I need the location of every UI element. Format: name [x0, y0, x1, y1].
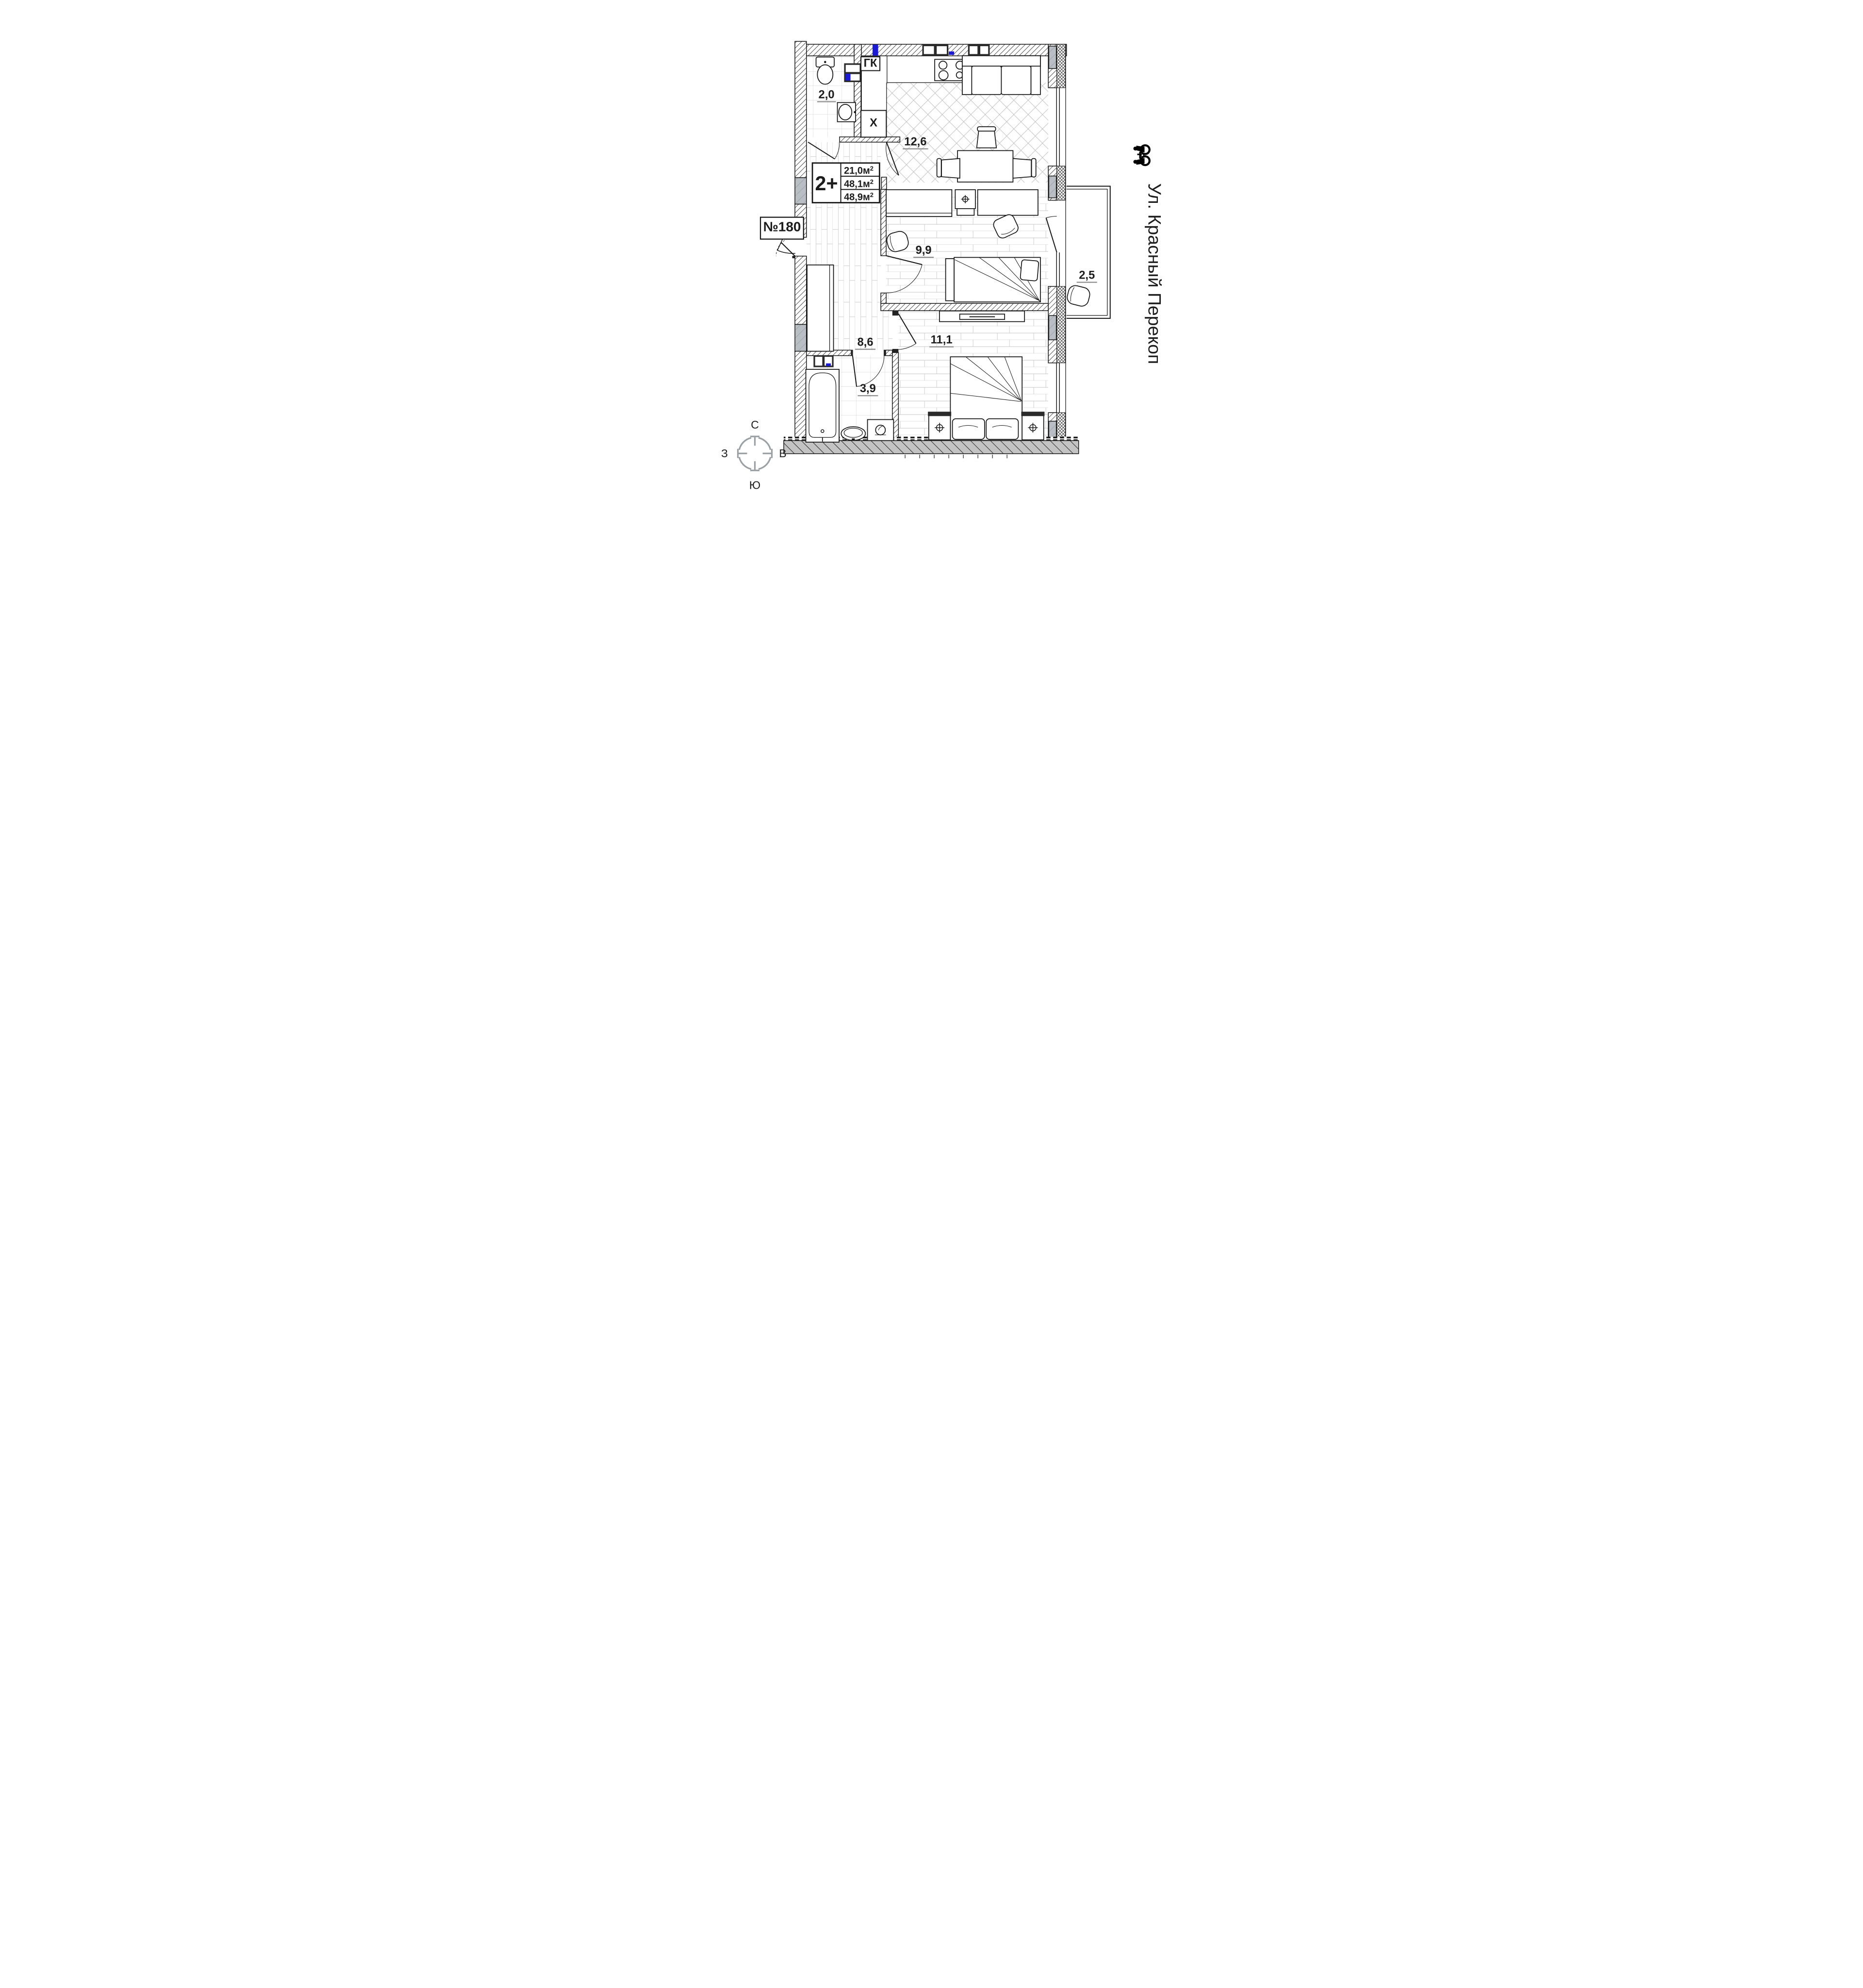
nightstand-desk: [955, 190, 975, 215]
window-bedroom-master: [1056, 363, 1059, 413]
area-balcony: 2,5: [1079, 269, 1095, 282]
street-side: Ул. Красный Перекоп: [1133, 145, 1165, 364]
plumbing-riser-mark: [949, 51, 954, 55]
dining-chair-left: [937, 159, 959, 179]
floorplan-canvas: ГК Х: [699, 0, 1165, 497]
nightstand-right: [1021, 412, 1044, 440]
compass-letters: С Ю З В: [721, 418, 787, 491]
unit-total-area: 48,9м2: [844, 191, 874, 203]
toilet: [816, 57, 834, 84]
sofa: [962, 56, 1040, 95]
window-kitchen: [1056, 88, 1059, 166]
wall-left: [795, 256, 807, 325]
bathtub: [806, 369, 839, 442]
plumbing-riser-mark: [873, 45, 878, 56]
unit-number: №180: [763, 219, 801, 234]
fridge-label: Х: [870, 116, 877, 130]
bathroom-sink: [841, 427, 865, 441]
wall-right-insulation: [1056, 286, 1065, 363]
street-label: Ул. Красный Перекоп: [1144, 183, 1165, 364]
plumbing-box: [845, 64, 860, 73]
dining-chair-right: [1013, 159, 1036, 179]
wall-right-glass-block: [1049, 176, 1056, 198]
compass: С Ю З В: [721, 418, 787, 491]
unit-usable-area: 48,1м2: [844, 178, 874, 190]
top-wall-box: [969, 46, 978, 55]
plumbing-box: [814, 356, 823, 366]
wall-right-insulation: [1056, 44, 1065, 88]
dresser: [977, 190, 1038, 215]
area-kitchen: 12,6: [904, 135, 926, 149]
wall-kitchen-left: [881, 177, 887, 189]
door-frame-block: [892, 311, 898, 315]
compass-east: В: [779, 447, 786, 460]
unit-living-area: 21,0м2: [844, 165, 874, 177]
wall-right-glass-block: [1049, 46, 1056, 68]
wall-left-glass-block: [795, 324, 807, 351]
wall-right-glass-block: [1049, 421, 1056, 438]
wall-right-glass-block: [1049, 315, 1056, 340]
tv-stand: [939, 311, 1024, 322]
desk: [886, 190, 952, 216]
ground-ticks: [905, 455, 1007, 459]
area-bathroom: 3,9: [859, 382, 875, 395]
window-balcony: [1056, 252, 1059, 286]
compass-west: З: [721, 447, 728, 460]
plumbing-mark: [845, 74, 851, 81]
top-wall-box: [923, 46, 935, 55]
top-wall-box: [936, 46, 947, 55]
nightstand-left: [928, 412, 951, 440]
wall-wc-right: [854, 44, 861, 137]
wardrobe: [807, 265, 834, 351]
area-hallway: 8,6: [857, 336, 873, 349]
bed-double: [950, 357, 1022, 440]
wall-wc-bottom: [840, 137, 900, 142]
wall-bedroom-left: [881, 293, 886, 304]
wall-left: [795, 41, 807, 178]
wall-between-bedrooms: [881, 303, 1048, 311]
wc-sink: [837, 102, 856, 122]
wall-bedroom-left: [881, 189, 886, 256]
unit-type: 2+: [815, 172, 838, 195]
plumbing-mark: [826, 364, 831, 366]
unit-info-card: 2+ 21,0м2 48,1м2 48,9м2: [812, 163, 879, 203]
area-bedroom-master: 11,1: [930, 333, 952, 347]
callout-leader: [777, 239, 795, 254]
wall-left: [795, 351, 807, 441]
wall-right-insulation: [1056, 166, 1065, 200]
area-bedroom: 9,9: [915, 244, 931, 257]
top-wall-box: [979, 46, 989, 55]
hallway-floor-ext: [881, 311, 892, 350]
closet-label: ГК: [863, 57, 877, 70]
compass-north: С: [751, 418, 759, 431]
compass-south: Ю: [749, 479, 760, 491]
bed-single: [945, 257, 1040, 302]
dining-chair-top: [976, 127, 996, 148]
binoculars-icon: [1133, 145, 1149, 165]
washing-machine: [867, 419, 893, 440]
area-wc: 2,0: [818, 88, 834, 101]
wall-right-insulation: [1056, 413, 1065, 441]
dining-table: [957, 150, 1013, 182]
compass-ring: [738, 436, 772, 470]
wall-left-glass-block: [795, 178, 807, 204]
unit-number-callout: №180: [760, 217, 804, 254]
floorplan-page: ГК Х: [699, 0, 1165, 497]
